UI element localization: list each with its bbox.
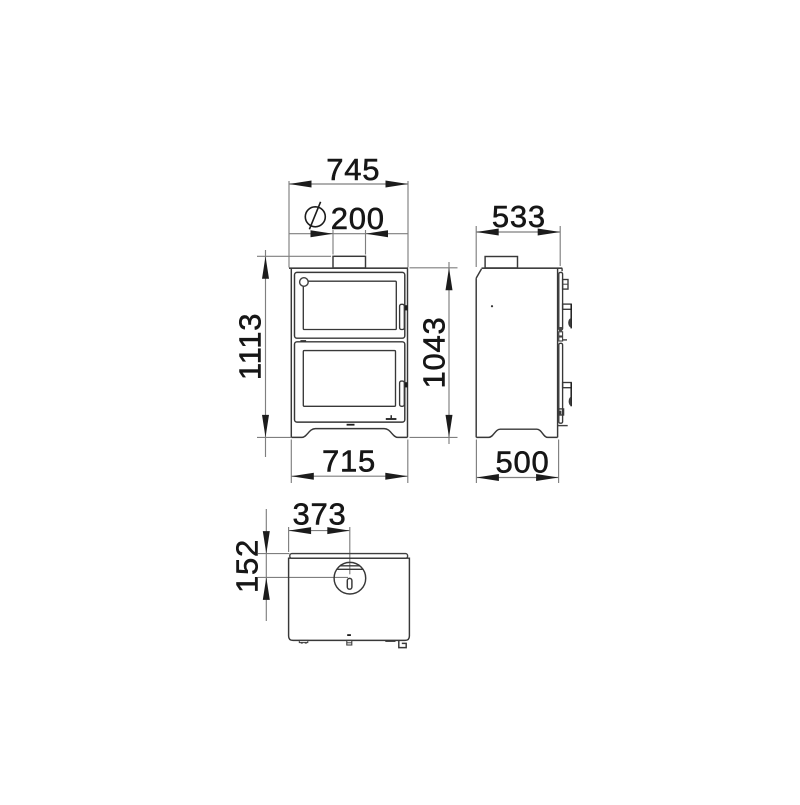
svg-text:1043: 1043 [417, 316, 452, 388]
svg-text:200: 200 [331, 201, 385, 236]
svg-text:533: 533 [492, 199, 546, 234]
svg-text:745: 745 [326, 152, 380, 187]
svg-text:500: 500 [495, 444, 549, 479]
svg-text:373: 373 [292, 497, 346, 532]
svg-text:715: 715 [322, 443, 376, 478]
svg-text:152: 152 [230, 539, 265, 593]
svg-text:1113: 1113 [232, 313, 267, 380]
